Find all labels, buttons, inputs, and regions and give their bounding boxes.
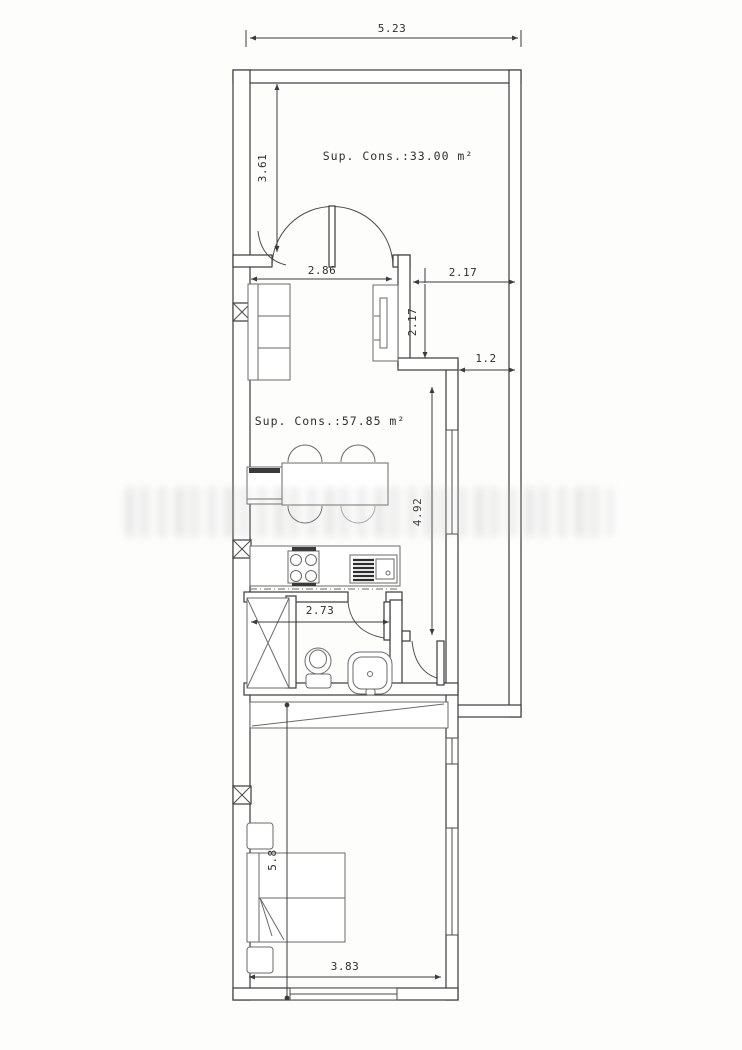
sofa (248, 284, 290, 380)
upper-room-wall-left-stub (233, 255, 272, 267)
floor-plan-drawing: 5.23 3.61 Sup. Cons.:33.00 m² 2.86 2.17 … (0, 0, 742, 1050)
bedroom-small-window (446, 738, 458, 764)
column-marker (233, 540, 251, 558)
kitchen-sink (350, 555, 397, 583)
chair (288, 445, 322, 462)
bed (247, 853, 345, 942)
dim-bedroom-width: 3.83 (331, 960, 360, 973)
bedroom-door (412, 641, 444, 685)
dining-area (247, 445, 388, 523)
dining-table (282, 463, 388, 505)
dim-patio-depth: 2.17 (406, 308, 419, 337)
upper-room-area-label: Sup. Cons.:33.00 m² (323, 149, 474, 163)
bedroom (247, 702, 448, 973)
kitchen-island (247, 467, 282, 504)
dim-bedroom-depth: 5.8 (266, 849, 279, 870)
dim-upper-room-depth: 3.61 (256, 154, 269, 183)
shower (247, 598, 289, 688)
dim-patio-width: 2.17 (449, 266, 478, 279)
chair (341, 506, 375, 523)
chair (341, 445, 375, 462)
right-boundary-wall (509, 70, 521, 717)
bedroom-bottom-window (290, 988, 397, 1000)
bedroom-side-window (446, 828, 458, 935)
double-door-center-post (329, 206, 335, 267)
column-marker (233, 786, 251, 804)
chair (288, 506, 322, 523)
living-room-area-label: Sup. Cons.:57.85 m² (255, 414, 406, 428)
nightstand (247, 823, 273, 849)
basin (348, 652, 392, 695)
kitchen-counter (250, 546, 400, 589)
dim-side-passage: 1.2 (475, 352, 496, 365)
living-room-window (446, 430, 458, 534)
nightstand (247, 947, 273, 973)
wardrobe (250, 702, 448, 728)
bedroom-door-wall-stub (402, 631, 410, 641)
tv-unit (373, 285, 398, 361)
dim-living-depth: 4.92 (411, 498, 424, 527)
dim-bathroom-width: 2.73 (306, 604, 335, 617)
top-exterior-wall (233, 70, 521, 83)
stove (288, 547, 319, 586)
headboard (247, 853, 259, 942)
floor-plan-canvas: 5.23 3.61 Sup. Cons.:33.00 m² 2.86 2.17 … (0, 0, 742, 1050)
dimension-lines (246, 30, 521, 1000)
dim-total-width: 5.23 (378, 22, 407, 35)
step-wall (398, 358, 458, 370)
bathroom-door (348, 602, 390, 640)
dim-opening-width: 2.86 (308, 264, 337, 277)
tv (380, 298, 387, 348)
toilet (305, 648, 331, 688)
